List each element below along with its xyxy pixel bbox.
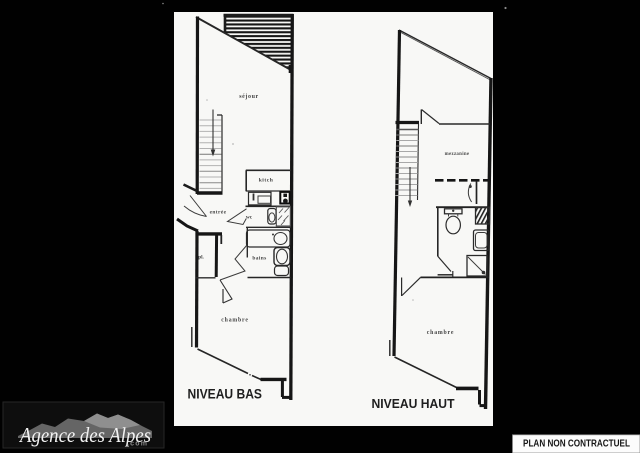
svg-text:chambre: chambre (221, 318, 248, 324)
svg-text:pl.: pl. (198, 255, 204, 261)
svg-text:séjour: séjour (239, 94, 259, 100)
svg-text:NIVEAU BAS: NIVEAU BAS (188, 386, 263, 402)
svg-text:PLAN NON CONTRACTUEL: PLAN NON CONTRACTUEL (523, 438, 630, 450)
svg-text:wc: wc (246, 215, 253, 221)
svg-text:kitch: kitch (259, 178, 274, 184)
svg-text:chambre: chambre (427, 330, 454, 336)
svg-text:bains: bains (252, 256, 266, 262)
svg-text:entrée: entrée (210, 210, 227, 216)
svg-text:mezzanine: mezzanine (445, 152, 470, 157)
svg-text:.com: .com (127, 441, 148, 448)
svg-text:NIVEAU HAUT: NIVEAU HAUT (372, 396, 455, 411)
